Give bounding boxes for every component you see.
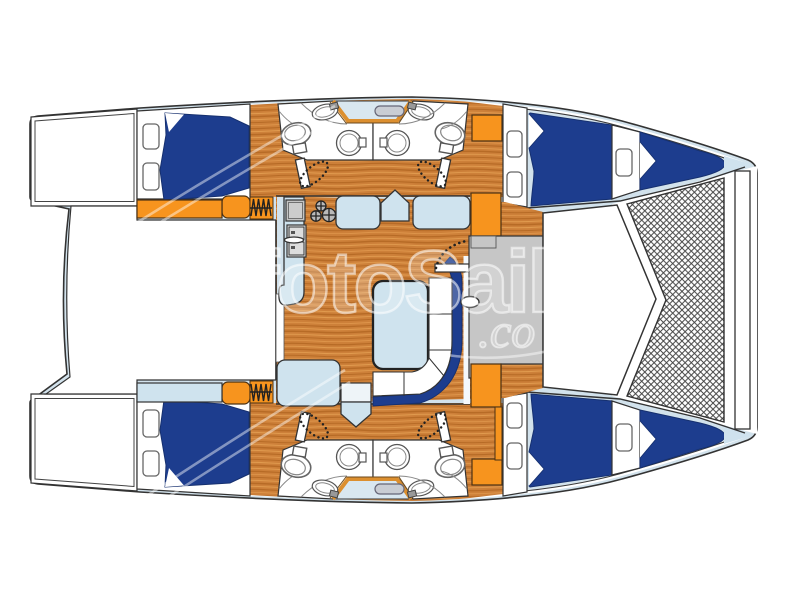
svg-text:.co: .co [478, 305, 535, 358]
